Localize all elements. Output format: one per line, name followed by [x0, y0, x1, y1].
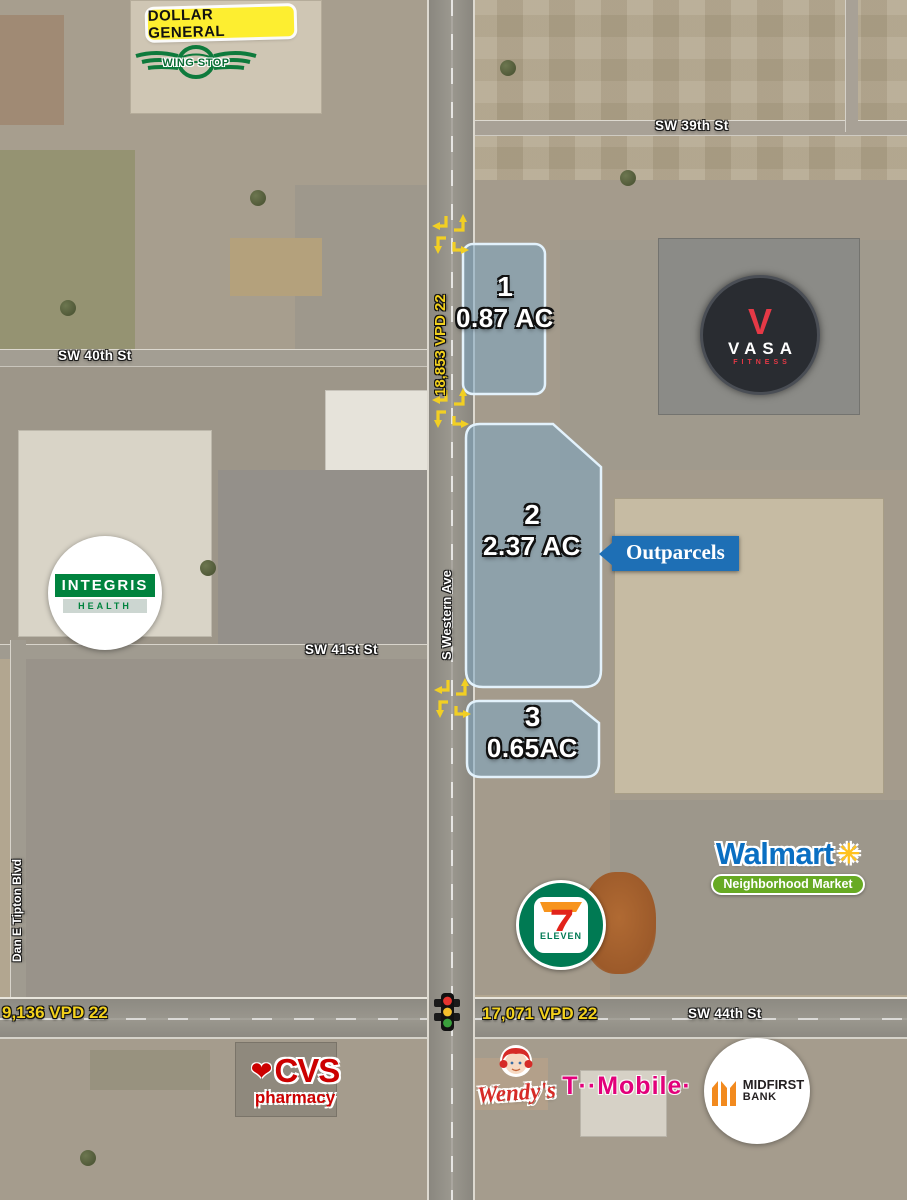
midfirst-name2: BANK [743, 1091, 804, 1103]
aerial-building-school [230, 238, 322, 296]
parcel-2-number: 2 [524, 500, 540, 530]
midfirst-m-icon [710, 1076, 738, 1106]
cvs-name: CVS [274, 1052, 339, 1090]
walmart-logo: Walmart ✳ Neighborhood Market [698, 836, 878, 895]
tmobile-name: T··Mobile· [562, 1072, 691, 1101]
tree [620, 170, 636, 186]
road-northeast [845, 0, 858, 132]
parcel-1-number: 1 [497, 272, 513, 302]
integris-tagline: HEALTH [63, 599, 147, 613]
aerial-building-apartments [0, 15, 64, 125]
tree [80, 1150, 96, 1166]
wendys-girl-icon [496, 1042, 536, 1080]
walmart-name: Walmart [716, 836, 834, 872]
integris-name: INTEGRIS [55, 574, 155, 597]
outparcels-callout: Outparcels [612, 536, 739, 571]
aerial-lot-walmart [610, 800, 907, 995]
parcel-2-acreage: 2.37 AC [483, 532, 581, 560]
street-label-western: S Western Ave [439, 570, 454, 660]
seven-eleven-card: 7 ELEVEN [534, 897, 588, 953]
street-label-sw44: SW 44th St [688, 1006, 762, 1021]
parcel-3-number: 3 [525, 702, 541, 732]
seven-eleven-eleven: ELEVEN [538, 931, 584, 941]
wendys-logo: Wendy's [468, 1042, 564, 1106]
street-label-tipton: Dan E Tipton Blvd [10, 859, 24, 962]
aerial-lot-mid [218, 470, 427, 644]
midfirst-name: MIDFIRST [743, 1079, 804, 1091]
aerial-building-strip-west [90, 1050, 210, 1090]
vasa-v-icon: V [748, 305, 772, 339]
aerial-site-map: 1 0.87 AC 2 2.37 AC 3 0.65AC Outparcels … [0, 0, 907, 1200]
parcel-3-acreage: 0.65AC [487, 734, 578, 762]
wingstop-label: WING STOP [162, 57, 229, 69]
tree [200, 560, 216, 576]
aerial-campus-green [0, 150, 135, 350]
dollar-general-logo: DOLLAR GENERAL [148, 6, 295, 40]
street-label-sw40: SW 40th St [58, 348, 132, 363]
tree [250, 190, 266, 206]
street-label-sw41: SW 41st St [305, 642, 378, 657]
vasa-tagline: FITNESS [733, 359, 791, 366]
midfirst-bank-logo: MIDFIRST BANK [704, 1038, 810, 1144]
wingstop-logo: WING STOP [128, 40, 264, 86]
aerial-building-strip40th [325, 390, 429, 472]
tmobile-logo: T··Mobile· [552, 1072, 702, 1101]
street-label-sw39: SW 39th St [655, 118, 729, 133]
parcel-3-label: 3 0.65AC [470, 702, 595, 762]
tree [60, 300, 76, 316]
parcel-1-label: 1 0.87 AC [445, 272, 565, 332]
seven-eleven-logo: 7 ELEVEN [516, 880, 606, 970]
integris-health-logo: INTEGRIS HEALTH [48, 536, 162, 650]
tree [500, 60, 516, 76]
cvs-tagline: pharmacy [255, 1088, 335, 1108]
wendys-name: Wendy's [476, 1077, 556, 1108]
cvs-pharmacy-logo: ❤ CVS pharmacy [240, 1052, 350, 1108]
traffic-count-sw44-east: 17,071 VPD 22 [482, 1004, 597, 1024]
walmart-tagline: Neighborhood Market [711, 874, 864, 895]
parcel-2-label: 2 2.37 AC [472, 500, 592, 560]
road-sw-41st [0, 644, 470, 659]
vasa-fitness-logo: V VASA FITNESS [700, 275, 820, 395]
outparcels-label: Outparcels [626, 540, 725, 564]
vasa-name: VASA [728, 339, 798, 359]
aerial-lot-big [25, 658, 427, 997]
traffic-count-western: 18,853 VPD 22 [432, 294, 449, 396]
parcel-1-acreage: 0.87 AC [456, 304, 554, 332]
dollar-general-label: DOLLAR GENERAL [148, 4, 295, 42]
walmart-spark-icon: ✳ [838, 839, 861, 870]
traffic-count-sw44-west: 9,136 VPD 22 [2, 1003, 108, 1023]
cvs-heart-icon: ❤ [251, 1058, 273, 1084]
